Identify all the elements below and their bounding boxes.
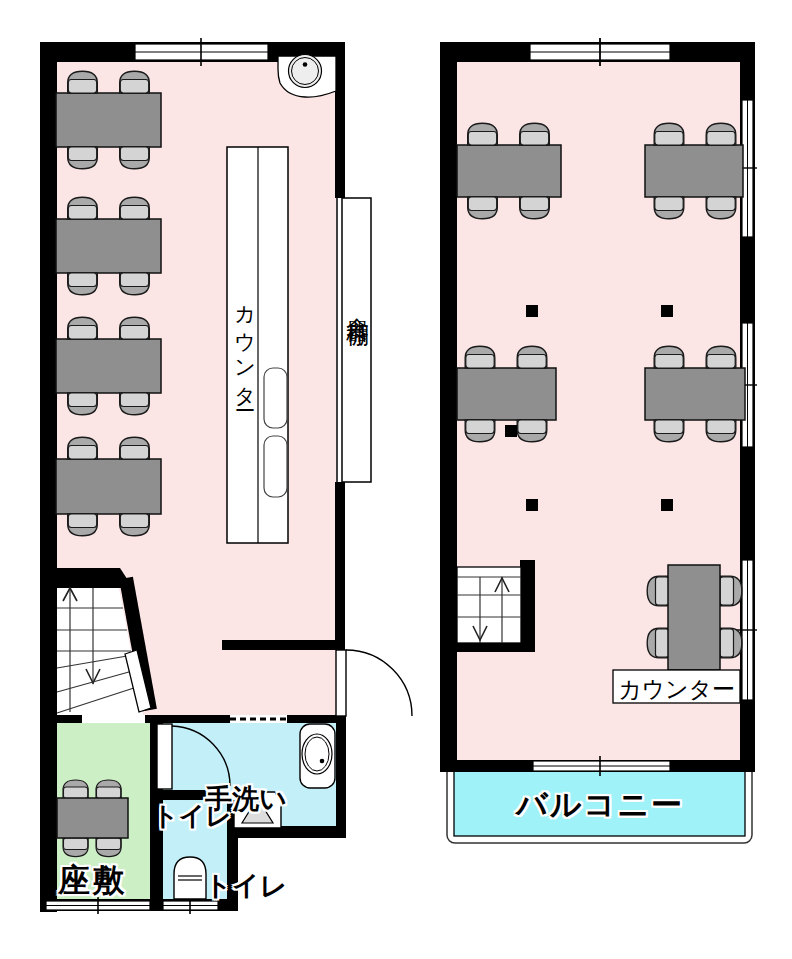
counter-2f-label: カウンター xyxy=(613,674,740,705)
handwash-toilet-label: 手洗い トイレ xyxy=(190,727,302,959)
counter-1f-label: カウンター xyxy=(231,291,259,402)
handwash-toilet-label-line2: トイレ xyxy=(190,872,302,901)
entry-door-icon xyxy=(336,650,412,716)
toilet-room-label: トイレ xyxy=(152,799,224,834)
cupboard-label: 食器棚 xyxy=(343,299,374,308)
floor-plan: カウンター 食器棚 手洗い トイレ トイレ 座敷 カウンター バルコニー xyxy=(0,0,792,959)
kitchen-sink-icon xyxy=(278,55,336,98)
balcony-label: バルコニー xyxy=(450,784,750,826)
tatami-room-label: 座敷 xyxy=(48,859,136,903)
cupboard xyxy=(342,198,371,482)
washbasin-icon xyxy=(300,724,335,788)
stairs-2f-icon xyxy=(457,567,521,643)
